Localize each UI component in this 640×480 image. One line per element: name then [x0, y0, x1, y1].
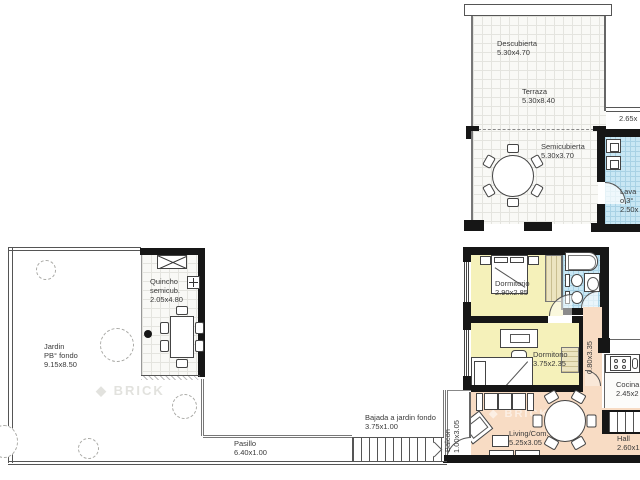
grill-icon	[157, 255, 187, 269]
dormitorio2-label: Dormitorio 3.75x2.35	[533, 351, 568, 369]
round-table-icon	[492, 155, 534, 197]
tree-icon	[78, 438, 99, 459]
quincho-table-icon	[170, 316, 194, 358]
watermark-jardin: ◆ BRICK	[96, 383, 165, 399]
room-terraza	[471, 16, 606, 131]
column-icon	[144, 330, 152, 338]
pasillo-interior-dim-label: 0.80x3.35	[585, 322, 594, 374]
toilet-tank	[565, 274, 570, 287]
toilet-icon	[565, 273, 584, 288]
pasillo-connector-line	[201, 379, 204, 436]
washer-drum	[610, 160, 619, 169]
monitor-icon	[510, 334, 530, 343]
sink-icon	[584, 273, 600, 292]
lavadero-line1: Lava	[620, 187, 636, 196]
kitchen-sink-icon	[632, 358, 638, 369]
sink-basin	[587, 277, 599, 291]
living-label: Living/Com. 5.25x3.05	[509, 430, 549, 448]
terrace-dashed-boundary	[478, 129, 594, 130]
balcon-name-label: Balcon	[443, 410, 452, 452]
kitchen-top-line	[610, 339, 640, 340]
hall-label: Hall 2.60x1	[617, 435, 640, 453]
burner-icon	[622, 365, 626, 369]
sofa-arm	[476, 393, 483, 411]
lavadero-top-wall	[597, 129, 640, 137]
watermark-text: BRICK	[114, 383, 165, 398]
tree-icon	[36, 260, 56, 280]
washer-icon	[606, 156, 621, 170]
terraza-side-dim-label: 2.65x	[619, 115, 637, 124]
bathtub-icon	[565, 252, 598, 271]
chair-icon	[533, 415, 543, 428]
cocina-name: Cocina	[616, 380, 639, 389]
sofa-cushion	[484, 393, 498, 410]
wall-segment	[464, 220, 484, 231]
jardin-name: Jardin	[44, 342, 64, 351]
wall-segment	[524, 222, 552, 231]
hall-dim: 2.60x1	[617, 443, 640, 452]
quincho-dim: 2.05x4.80	[150, 295, 183, 304]
window-icon	[464, 262, 469, 302]
pillow-icon	[474, 361, 486, 387]
living-name: Living/Com.	[509, 429, 549, 438]
jardin-dim: 9.15x8.50	[44, 360, 77, 369]
washer-drum	[610, 143, 619, 152]
terraza-dim: 5.30x8.40	[522, 96, 555, 105]
burner-icon	[614, 359, 618, 363]
kitchen-left-line	[604, 354, 605, 412]
sofa-arm	[527, 393, 534, 411]
tree-icon	[0, 425, 18, 458]
wall-segment	[463, 316, 548, 323]
toilet-bowl	[571, 274, 583, 287]
dormitorio1-dim: 2.90x2.85	[495, 288, 528, 297]
garden-top-line	[8, 247, 141, 251]
stairs-icon	[602, 410, 640, 434]
chair-icon	[507, 198, 519, 207]
bajada-name: Bajada a jardin fondo	[365, 413, 436, 422]
tree-icon	[172, 394, 197, 419]
terrace-top-wall	[464, 4, 612, 16]
pasillo-name: Pasillo	[234, 439, 256, 448]
pillow-icon	[494, 257, 508, 263]
wardrobe-icon	[545, 255, 562, 302]
floor-plan: 2.65x Descubierta 5.30x4.70 Terraza 5.30…	[0, 0, 640, 480]
balcon-dim-label: 1.00x3.05	[452, 407, 461, 453]
jardin-line2: PB° fondo	[44, 351, 78, 360]
cocina-dim: 2.45x2	[616, 389, 639, 398]
chair-icon	[507, 144, 519, 153]
bajada-label: Bajada a jardin fondo 3.75x1.00	[365, 414, 436, 432]
pasillo-label: Pasillo 6.40x1.00	[234, 440, 267, 458]
bajada-dim: 3.75x1.00	[365, 422, 398, 431]
chair-icon	[176, 306, 188, 315]
kitchen-corner-wall	[598, 338, 610, 353]
watermark-diamond-icon: ◆	[96, 383, 108, 398]
chair-icon	[195, 322, 204, 334]
terraza-label: Terraza 5.30x8.40	[522, 88, 555, 106]
sofa-icon	[476, 391, 534, 412]
garden-bottom-line	[8, 461, 447, 465]
stove-icon	[610, 356, 631, 371]
quincho-line2: semicub.	[150, 286, 180, 295]
terrace-side-wing-wall	[606, 107, 640, 112]
quincho-sink-icon	[187, 276, 200, 289]
descubierta-dim: 5.30x4.70	[497, 48, 530, 57]
nightstand-icon	[528, 256, 539, 265]
chair-icon	[195, 340, 204, 352]
sink-cross-line	[193, 278, 194, 287]
lavadero-left-wall	[597, 137, 605, 182]
pasillo-dim: 6.40x1.00	[234, 448, 267, 457]
sofa-cushion	[498, 393, 512, 410]
corridor-left-wall	[579, 323, 583, 392]
bathtub-inner	[568, 255, 596, 270]
lavadero-line2: o 3°	[620, 196, 633, 205]
lavadero-label: Lava o 3° 2.50x	[620, 188, 638, 215]
lavadero-line3: 2.50x	[620, 205, 638, 214]
dormitorio2-name: Dormitorio	[533, 350, 568, 359]
balcony-divider	[469, 392, 471, 437]
burner-icon	[614, 365, 618, 369]
semicubierta-name: Semicubierta	[541, 142, 585, 151]
quincho-name: Quincho	[150, 277, 178, 286]
quincho-top-wall	[140, 248, 205, 255]
chair-icon	[160, 340, 169, 352]
hall-name: Hall	[617, 434, 630, 443]
coffee-table-icon	[492, 435, 509, 447]
quincho-bottom-line	[141, 375, 200, 380]
dormitorio1-label: Dormitorio 2.90x2.85	[495, 280, 530, 298]
wall-segment	[591, 223, 640, 232]
terrace-right-wall	[604, 16, 606, 111]
pasillo-top-line	[203, 435, 352, 438]
quincho-right-wall	[198, 248, 205, 377]
pillow-icon	[510, 257, 524, 263]
living-dim: 5.25x3.05	[509, 438, 542, 447]
descubierta-name: Descubierta	[497, 39, 537, 48]
window-icon	[464, 330, 469, 376]
dormitorio2-dim: 3.75x2.35	[533, 359, 566, 368]
washer-icon	[606, 139, 621, 153]
desk-icon	[500, 329, 538, 348]
terraza-name: Terraza	[522, 87, 547, 96]
burner-icon	[622, 359, 626, 363]
tree-icon	[100, 328, 134, 362]
cocina-label: Cocina 2.45x2	[616, 381, 639, 399]
bottom-wall	[443, 455, 640, 463]
wall-segment	[463, 255, 471, 262]
descubierta-label: Descubierta 5.30x4.70	[497, 40, 537, 58]
semicubierta-label: Semicubierta 5.30x3.70	[541, 143, 585, 161]
chair-icon	[176, 359, 188, 368]
quincho-label: Quincho semicub. 2.05x4.80	[150, 278, 183, 305]
semicubierta-dim: 5.30x3.70	[541, 151, 574, 160]
nightstand-icon	[480, 256, 491, 265]
chair-icon	[160, 322, 169, 334]
sofa-cushion	[512, 393, 526, 410]
lavadero-left-wall	[597, 204, 605, 224]
dormitorio1-name: Dormitorio	[495, 279, 530, 288]
chair-icon	[587, 415, 597, 428]
jardin-label: Jardin PB° fondo 9.15x8.50	[44, 343, 78, 370]
wall-segment	[572, 316, 583, 323]
